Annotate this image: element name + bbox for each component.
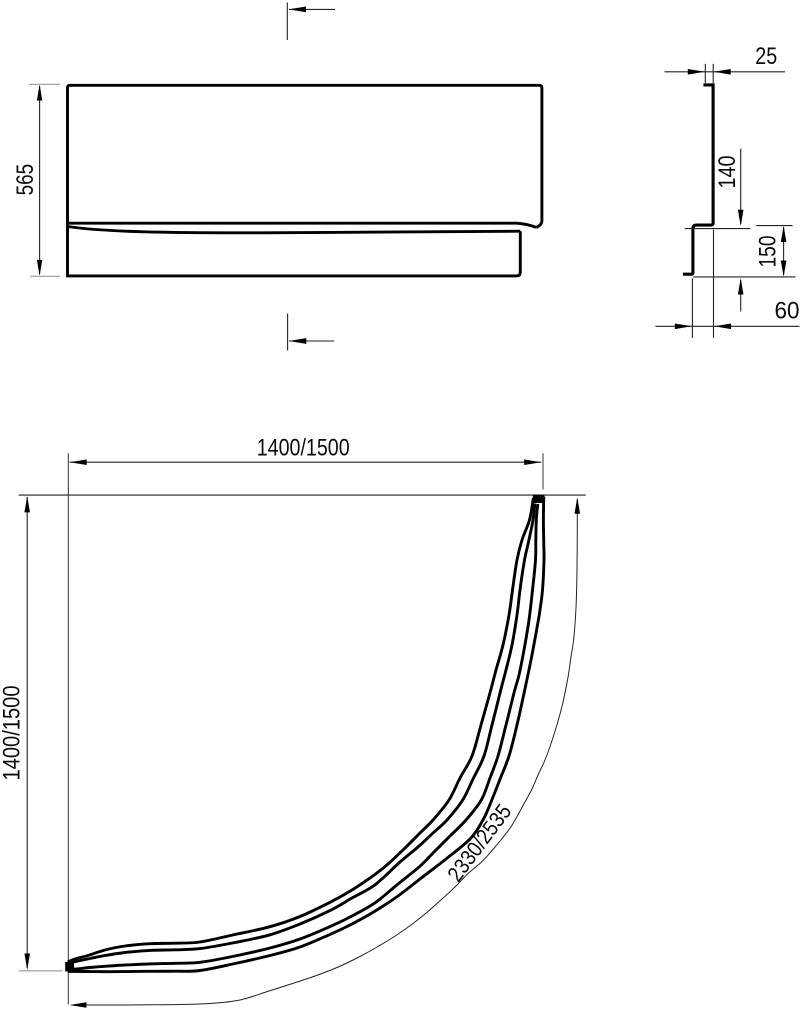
svg-text:25: 25 xyxy=(755,43,777,70)
svg-text:60: 60 xyxy=(775,298,800,325)
svg-text:1400/1500: 1400/1500 xyxy=(257,434,350,461)
svg-text:565: 565 xyxy=(12,164,39,196)
svg-text:140: 140 xyxy=(714,156,741,189)
svg-text:1400/1500: 1400/1500 xyxy=(0,686,25,781)
svg-text:150: 150 xyxy=(754,236,781,268)
